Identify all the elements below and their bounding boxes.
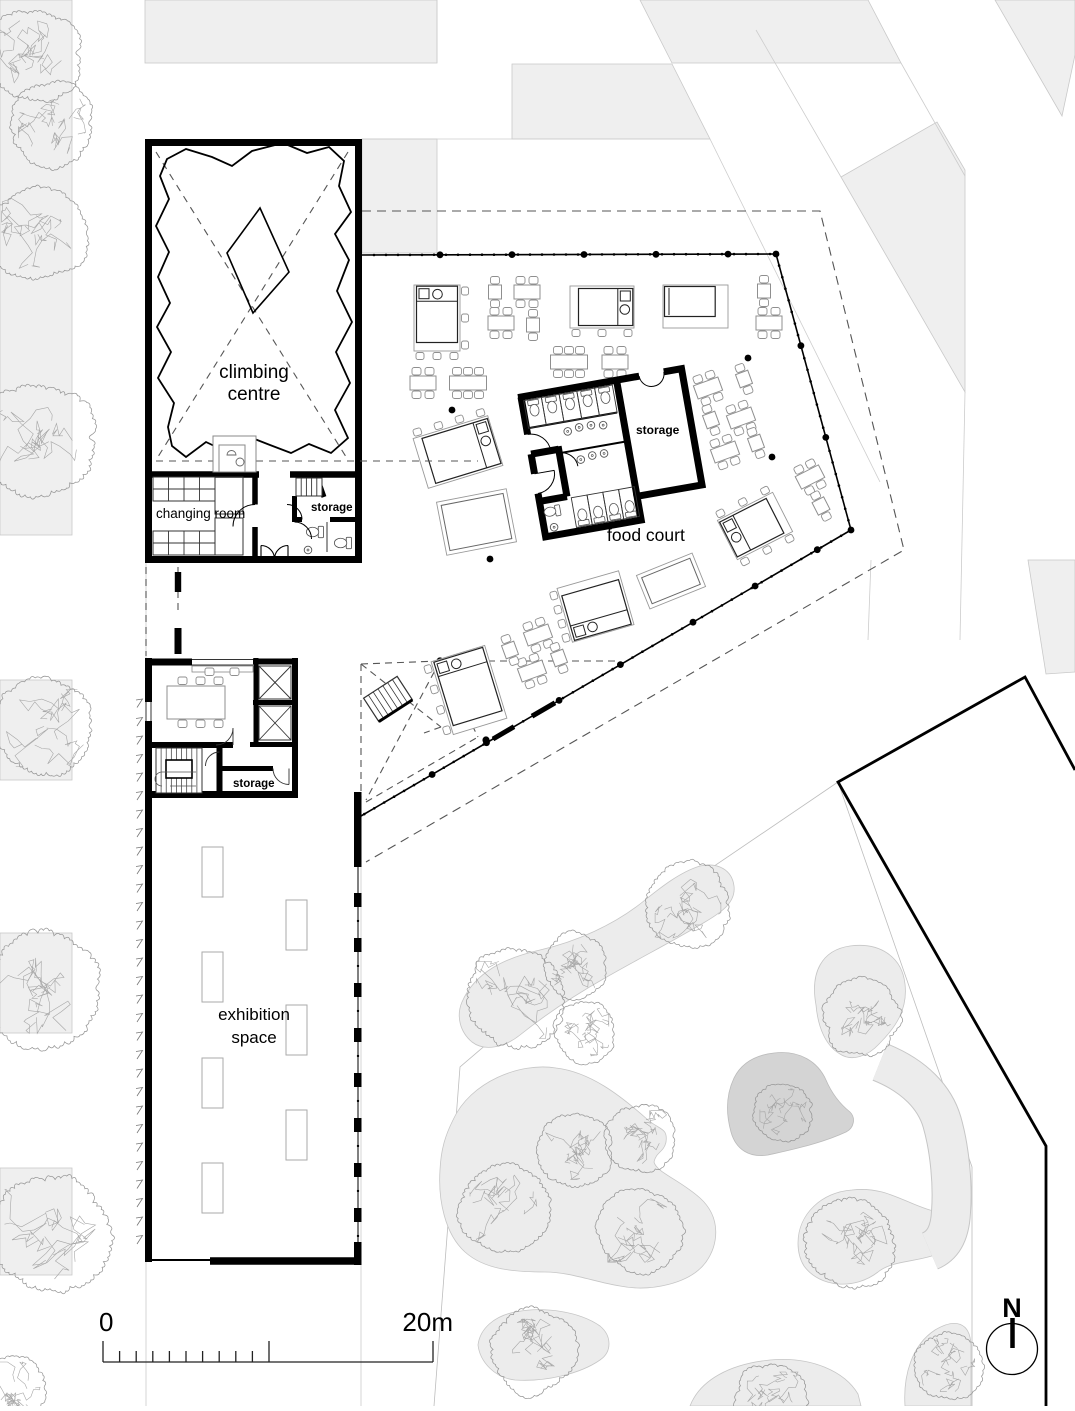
svg-text:food court: food court — [607, 525, 685, 545]
svg-text:storage: storage — [233, 778, 275, 790]
svg-text:exhibition: exhibition — [218, 1005, 290, 1024]
svg-text:0: 0 — [99, 1307, 113, 1337]
svg-text:20m: 20m — [402, 1307, 453, 1337]
svg-text:changing room: changing room — [156, 506, 245, 521]
svg-text:storage: storage — [311, 502, 353, 514]
svg-text:space: space — [231, 1028, 276, 1047]
svg-text:storage: storage — [636, 423, 680, 437]
svg-text:centre: centre — [228, 384, 281, 405]
svg-text:climbing: climbing — [219, 362, 289, 383]
svg-text:N: N — [1002, 1293, 1022, 1323]
